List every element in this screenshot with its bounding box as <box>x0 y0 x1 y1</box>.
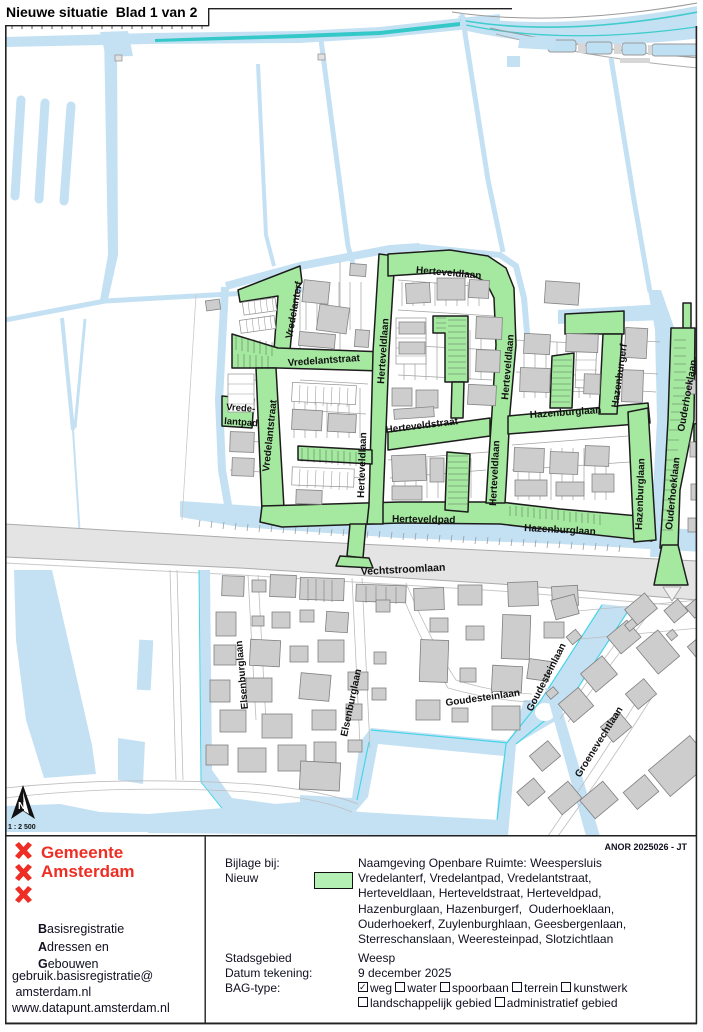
svg-text:Vrede-: Vrede- <box>226 402 256 415</box>
svg-text:Herteveldpad: Herteveldpad <box>392 514 456 526</box>
svg-text:Herteveldlaan: Herteveldlaan <box>356 432 369 498</box>
svg-text:N: N <box>18 801 25 812</box>
svg-text:Nieuwe situatie Blad 1 van 2: Nieuwe situatie Blad 1 van 2 <box>6 4 198 20</box>
svg-text:1 : 2 500: 1 : 2 500 <box>8 824 36 831</box>
